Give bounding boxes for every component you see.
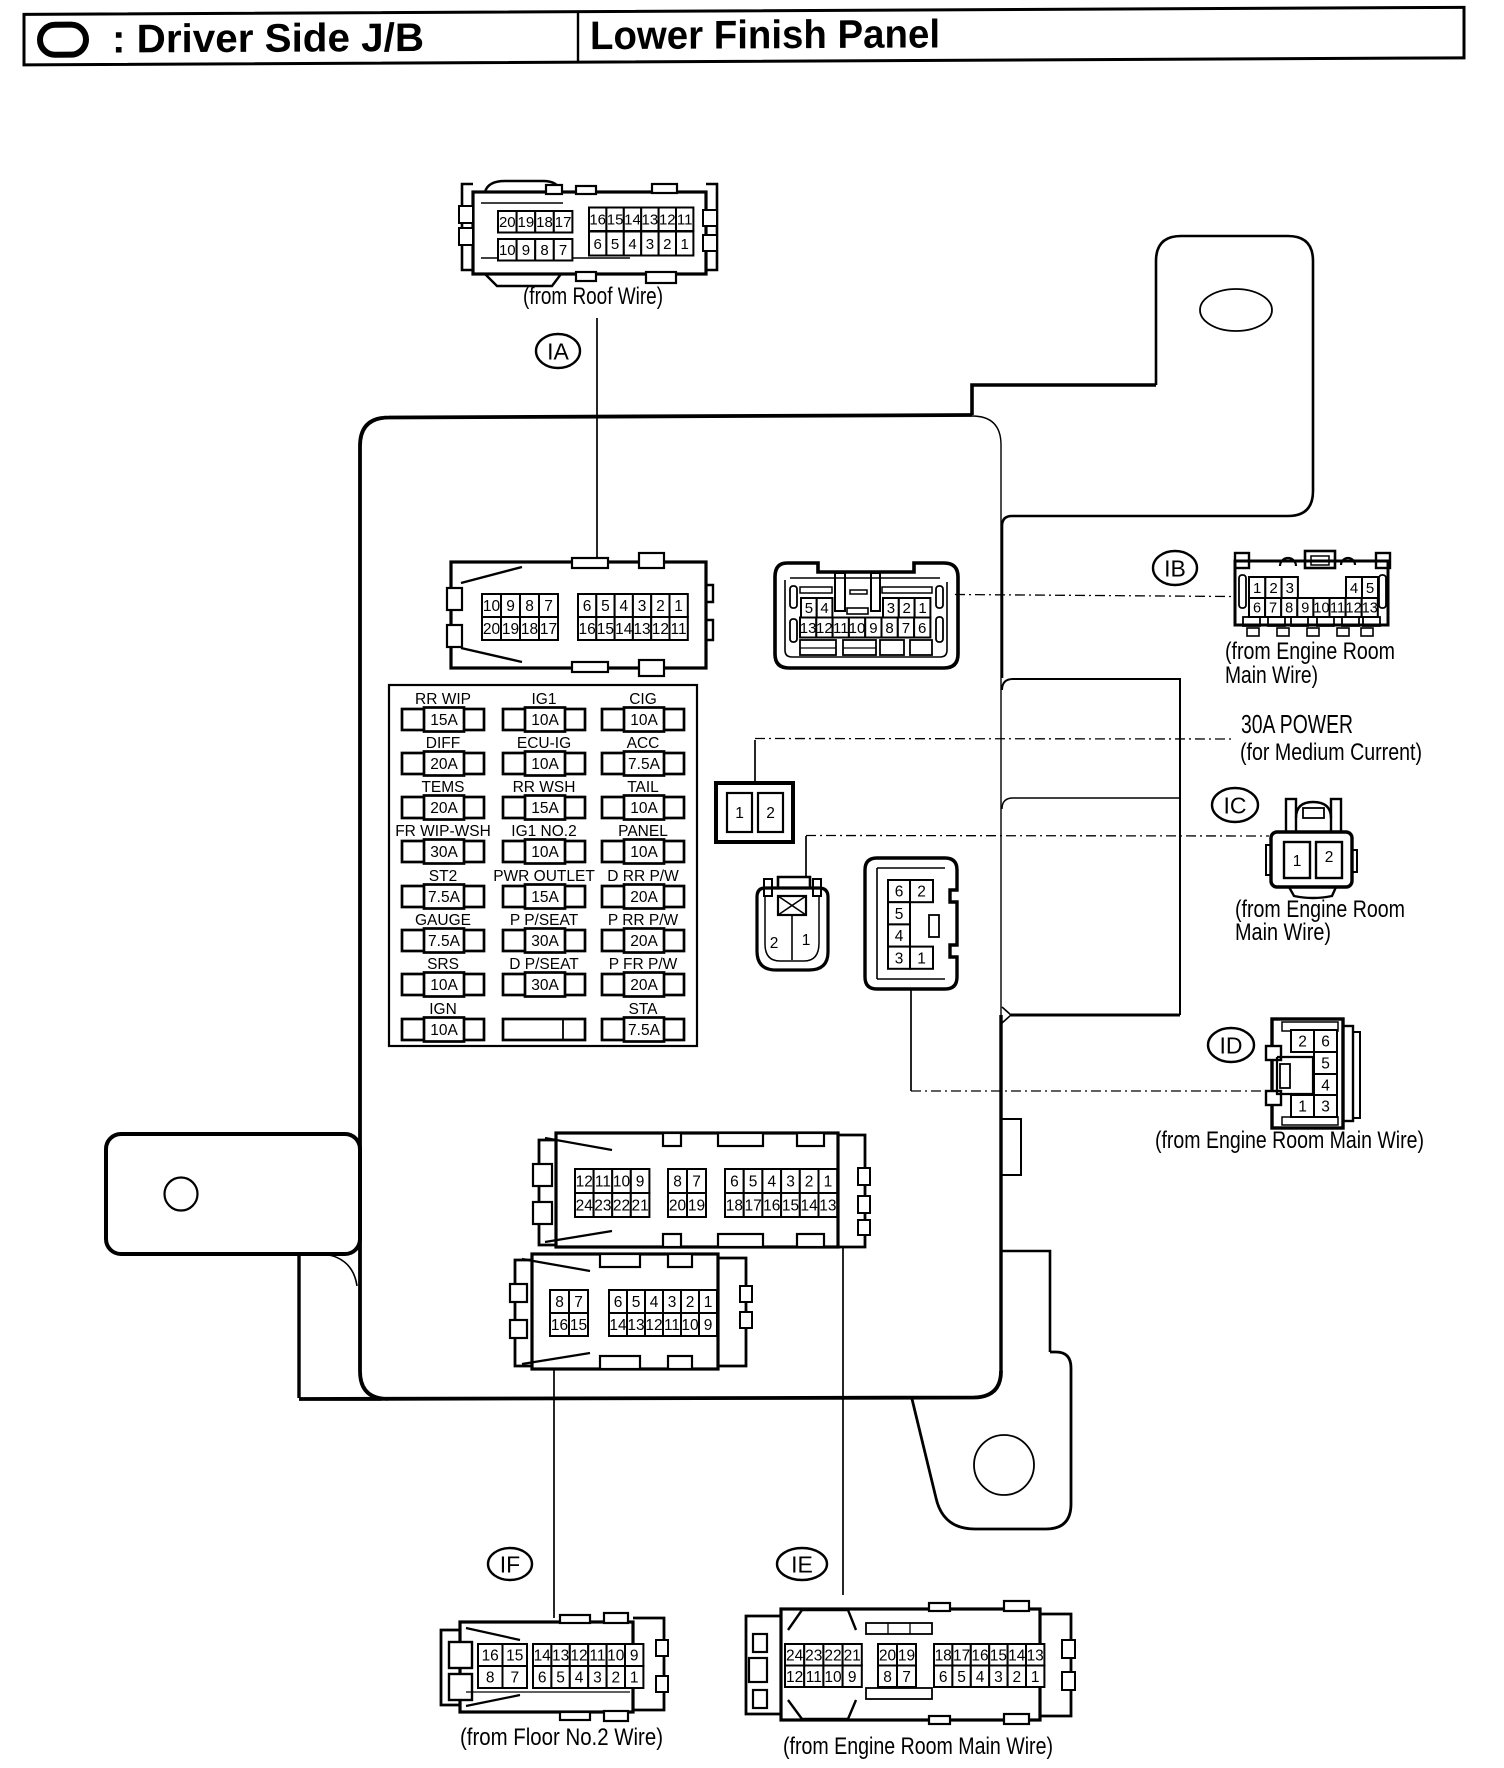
- svg-text:1: 1: [1031, 1669, 1040, 1686]
- svg-text:16: 16: [589, 212, 606, 229]
- svg-text:1: 1: [704, 1294, 713, 1311]
- svg-text:14: 14: [609, 1317, 627, 1334]
- svg-text:12: 12: [645, 1317, 662, 1334]
- svg-text:9: 9: [506, 598, 515, 615]
- svg-text:18: 18: [726, 1198, 743, 1215]
- svg-text:5: 5: [895, 906, 904, 923]
- svg-text:11: 11: [595, 1174, 611, 1191]
- svg-text:(from Engine Room Main Wire): (from Engine Room Main Wire): [1155, 1127, 1424, 1154]
- svg-text:Lower Finish Panel: Lower Finish Panel: [590, 12, 940, 58]
- svg-text:4: 4: [619, 598, 628, 615]
- svg-text:11: 11: [833, 620, 849, 637]
- svg-text:IC: IC: [1224, 792, 1247, 818]
- svg-text:5: 5: [805, 600, 813, 617]
- svg-text:1: 1: [630, 1670, 639, 1687]
- svg-text:8: 8: [525, 598, 534, 615]
- svg-text:15: 15: [607, 212, 624, 229]
- svg-text:2: 2: [805, 1174, 814, 1191]
- svg-text:3: 3: [994, 1669, 1003, 1686]
- svg-text:1: 1: [917, 950, 926, 967]
- svg-text:30A POWER: 30A POWER: [1241, 709, 1353, 739]
- svg-text:17: 17: [953, 1647, 970, 1664]
- svg-text:13: 13: [1362, 601, 1378, 617]
- svg-text:20: 20: [499, 214, 516, 231]
- svg-text:22: 22: [824, 1647, 841, 1664]
- svg-text:14: 14: [800, 1198, 818, 1215]
- svg-text:IG1 NO.2: IG1 NO.2: [511, 823, 576, 840]
- svg-text:11: 11: [589, 1648, 605, 1665]
- svg-text:20A: 20A: [630, 933, 658, 950]
- svg-text:1: 1: [681, 236, 689, 253]
- svg-text:10: 10: [824, 1669, 842, 1686]
- svg-text:14: 14: [624, 212, 641, 229]
- svg-text:1: 1: [735, 805, 744, 822]
- svg-text:D P/SEAT: D P/SEAT: [509, 956, 579, 973]
- svg-text:13: 13: [1027, 1647, 1044, 1664]
- svg-text:(from Engine Room Main Wire): (from Engine Room Main Wire): [783, 1733, 1053, 1760]
- svg-text:10A: 10A: [630, 844, 658, 861]
- svg-text:3: 3: [786, 1174, 795, 1191]
- svg-text:D RR P/W: D RR P/W: [607, 868, 679, 885]
- svg-text:20: 20: [879, 1647, 897, 1664]
- svg-text:12: 12: [1346, 601, 1362, 617]
- svg-text:5: 5: [1321, 1056, 1330, 1073]
- svg-text:IG1: IG1: [532, 691, 557, 708]
- svg-text:P FR P/W: P FR P/W: [609, 956, 678, 973]
- svg-text:13: 13: [800, 620, 817, 637]
- svg-text:14: 14: [1008, 1647, 1026, 1664]
- svg-text:6: 6: [1321, 1034, 1330, 1051]
- svg-text:10A: 10A: [531, 756, 559, 773]
- svg-text:11: 11: [664, 1317, 680, 1334]
- svg-text:13: 13: [627, 1317, 644, 1334]
- svg-text:2: 2: [917, 884, 926, 901]
- svg-text:5: 5: [632, 1294, 641, 1311]
- svg-text:(from Engine Room: (from Engine Room: [1225, 638, 1395, 665]
- svg-text:11: 11: [677, 212, 693, 229]
- svg-text:8: 8: [540, 242, 548, 259]
- svg-text:2: 2: [1012, 1669, 1021, 1686]
- svg-text:19: 19: [502, 621, 519, 638]
- svg-text:9: 9: [630, 1648, 639, 1665]
- svg-text:7: 7: [902, 1669, 911, 1686]
- svg-text:2: 2: [1298, 1034, 1307, 1051]
- svg-text:12: 12: [659, 212, 676, 229]
- svg-text:8: 8: [486, 1670, 495, 1687]
- svg-text:16: 16: [551, 1317, 568, 1334]
- svg-text:23: 23: [805, 1647, 822, 1664]
- svg-text:6: 6: [538, 1670, 547, 1687]
- svg-text:4: 4: [820, 600, 828, 617]
- svg-text:(from Floor No.2 Wire): (from Floor No.2 Wire): [460, 1724, 663, 1751]
- svg-text:9: 9: [636, 1174, 645, 1191]
- svg-text:9: 9: [704, 1317, 713, 1334]
- svg-text:15: 15: [597, 621, 614, 638]
- svg-text:P RR P/W: P RR P/W: [608, 912, 679, 929]
- svg-text:15: 15: [782, 1198, 799, 1215]
- svg-text:11: 11: [1330, 601, 1345, 617]
- svg-text:7: 7: [692, 1174, 701, 1191]
- svg-text:10: 10: [607, 1648, 625, 1665]
- svg-text:15A: 15A: [531, 889, 559, 906]
- svg-text:SRS: SRS: [427, 956, 459, 973]
- svg-text:DIFF: DIFF: [426, 735, 460, 752]
- svg-text:15: 15: [506, 1648, 523, 1665]
- svg-text:4: 4: [1321, 1078, 1330, 1095]
- svg-text:20: 20: [483, 621, 501, 638]
- svg-text:20A: 20A: [630, 977, 658, 994]
- svg-text:3: 3: [646, 236, 654, 253]
- svg-text:1: 1: [824, 1174, 833, 1191]
- svg-text:12: 12: [576, 1174, 593, 1191]
- svg-text:IF: IF: [500, 1551, 520, 1577]
- svg-text:18: 18: [935, 1647, 952, 1664]
- svg-text:9: 9: [848, 1669, 857, 1686]
- svg-text:8: 8: [673, 1174, 682, 1191]
- svg-text:(for Medium Current): (for Medium Current): [1240, 739, 1422, 766]
- svg-text:12: 12: [786, 1669, 803, 1686]
- svg-text:15A: 15A: [531, 800, 559, 817]
- svg-text:3: 3: [1321, 1099, 1330, 1116]
- svg-text:24: 24: [576, 1198, 594, 1215]
- svg-text:21: 21: [844, 1647, 861, 1664]
- svg-text:30A: 30A: [430, 844, 458, 861]
- svg-text:18: 18: [521, 621, 538, 638]
- svg-text:20: 20: [669, 1198, 687, 1215]
- svg-text:2: 2: [770, 935, 779, 952]
- svg-text:10: 10: [499, 242, 516, 259]
- svg-text:CIG: CIG: [629, 691, 657, 708]
- svg-text:10: 10: [613, 1174, 631, 1191]
- svg-text:7: 7: [510, 1670, 519, 1687]
- svg-text:20A: 20A: [630, 889, 658, 906]
- svg-text:12: 12: [570, 1648, 587, 1665]
- svg-text:12: 12: [816, 620, 833, 637]
- svg-text:6: 6: [895, 884, 904, 901]
- svg-text:10A: 10A: [531, 844, 559, 861]
- svg-text:ST2: ST2: [429, 868, 457, 885]
- svg-text:P P/SEAT: P P/SEAT: [510, 912, 579, 929]
- svg-text:3: 3: [638, 598, 647, 615]
- svg-text:GAUGE: GAUGE: [415, 912, 471, 929]
- svg-text:16: 16: [578, 621, 595, 638]
- svg-text:7.5A: 7.5A: [628, 1022, 661, 1039]
- svg-text:10A: 10A: [630, 712, 658, 729]
- svg-text:4: 4: [895, 928, 904, 945]
- svg-text:5: 5: [611, 236, 619, 253]
- svg-text:3: 3: [1286, 580, 1294, 597]
- svg-text:(from Roof Wire): (from Roof Wire): [523, 283, 663, 310]
- svg-text:1: 1: [674, 598, 683, 615]
- svg-text:1: 1: [918, 600, 926, 617]
- svg-text:FR WIP-WSH: FR WIP-WSH: [395, 823, 491, 840]
- svg-text:2: 2: [1325, 849, 1334, 866]
- svg-text:1: 1: [1293, 853, 1302, 870]
- svg-text:15A: 15A: [430, 712, 458, 729]
- svg-text:13: 13: [633, 621, 650, 638]
- svg-text:STA: STA: [629, 1001, 659, 1018]
- svg-text:7: 7: [1269, 601, 1277, 617]
- svg-text:7.5A: 7.5A: [628, 756, 661, 773]
- svg-text:Main Wire): Main Wire): [1225, 662, 1318, 689]
- svg-text:: Driver Side J/B: : Driver Side J/B: [112, 16, 424, 62]
- svg-text:18: 18: [536, 214, 553, 231]
- svg-text:8: 8: [885, 620, 893, 637]
- svg-text:IA: IA: [547, 338, 569, 364]
- svg-text:ACC: ACC: [627, 735, 660, 752]
- svg-text:22: 22: [613, 1198, 630, 1215]
- svg-text:10: 10: [849, 620, 866, 637]
- svg-text:7: 7: [544, 598, 553, 615]
- svg-text:10: 10: [483, 598, 501, 615]
- svg-text:9: 9: [522, 242, 530, 259]
- svg-text:ECU-IG: ECU-IG: [517, 735, 571, 752]
- svg-text:10: 10: [1313, 601, 1329, 617]
- svg-text:RR WSH: RR WSH: [513, 779, 576, 796]
- svg-text:5: 5: [1366, 580, 1374, 597]
- svg-text:13: 13: [552, 1648, 569, 1665]
- svg-text:ID: ID: [1220, 1032, 1243, 1058]
- svg-text:4: 4: [1350, 580, 1358, 597]
- svg-text:6: 6: [583, 598, 592, 615]
- svg-text:30A: 30A: [531, 977, 559, 994]
- svg-text:24: 24: [786, 1647, 804, 1664]
- svg-text:8: 8: [883, 1669, 892, 1686]
- svg-text:2: 2: [611, 1670, 620, 1687]
- svg-text:7.5A: 7.5A: [428, 933, 461, 950]
- svg-text:PWR OUTLET: PWR OUTLET: [493, 868, 595, 885]
- svg-text:20A: 20A: [430, 800, 458, 817]
- svg-text:9: 9: [869, 620, 877, 637]
- svg-text:TAIL: TAIL: [627, 779, 659, 796]
- svg-text:7: 7: [902, 620, 910, 637]
- svg-text:4: 4: [767, 1174, 776, 1191]
- svg-text:5: 5: [556, 1670, 565, 1687]
- svg-text:14: 14: [615, 621, 633, 638]
- svg-text:15: 15: [570, 1317, 587, 1334]
- svg-text:9: 9: [1301, 601, 1309, 617]
- svg-text:11: 11: [806, 1669, 822, 1686]
- svg-text:8: 8: [1285, 601, 1293, 617]
- svg-text:6: 6: [730, 1174, 739, 1191]
- svg-text:17: 17: [555, 214, 572, 231]
- svg-text:6: 6: [939, 1669, 948, 1686]
- svg-text:IB: IB: [1164, 555, 1186, 581]
- svg-text:17: 17: [540, 621, 557, 638]
- svg-text:TEMS: TEMS: [421, 779, 464, 796]
- svg-text:2: 2: [663, 236, 671, 253]
- svg-text:4: 4: [976, 1669, 985, 1686]
- svg-text:1: 1: [1253, 580, 1261, 597]
- svg-text:20A: 20A: [430, 756, 458, 773]
- svg-text:5: 5: [749, 1174, 758, 1191]
- svg-text:RR WIP: RR WIP: [415, 691, 471, 708]
- svg-text:IGN: IGN: [429, 1001, 457, 1018]
- svg-text:5: 5: [601, 598, 610, 615]
- svg-text:11: 11: [671, 621, 687, 638]
- svg-text:16: 16: [482, 1648, 499, 1665]
- svg-text:19: 19: [898, 1647, 915, 1664]
- svg-text:1: 1: [802, 932, 811, 949]
- svg-text:6: 6: [614, 1294, 623, 1311]
- svg-text:Main Wire): Main Wire): [1235, 919, 1331, 946]
- svg-text:16: 16: [971, 1647, 988, 1664]
- svg-text:14: 14: [534, 1648, 552, 1665]
- svg-text:7.5A: 7.5A: [428, 889, 461, 906]
- svg-text:15: 15: [990, 1647, 1007, 1664]
- svg-text:5: 5: [957, 1669, 966, 1686]
- svg-text:10: 10: [681, 1317, 699, 1334]
- svg-text:6: 6: [594, 236, 602, 253]
- svg-text:PANEL: PANEL: [618, 823, 668, 840]
- svg-text:19: 19: [518, 214, 535, 231]
- svg-text:10A: 10A: [430, 977, 458, 994]
- svg-text:2: 2: [903, 600, 911, 617]
- svg-text:7: 7: [574, 1294, 583, 1311]
- svg-text:19: 19: [688, 1198, 705, 1215]
- svg-text:8: 8: [555, 1294, 564, 1311]
- svg-text:10A: 10A: [630, 800, 658, 817]
- svg-text:21: 21: [631, 1198, 648, 1215]
- svg-text:2: 2: [766, 805, 775, 822]
- svg-text:13: 13: [819, 1198, 836, 1215]
- svg-text:10A: 10A: [531, 712, 559, 729]
- svg-text:10A: 10A: [430, 1022, 458, 1039]
- svg-text:6: 6: [1253, 601, 1261, 617]
- svg-text:30A: 30A: [531, 933, 559, 950]
- svg-text:4: 4: [628, 236, 636, 253]
- svg-text:17: 17: [744, 1198, 761, 1215]
- svg-text:1: 1: [1298, 1099, 1307, 1116]
- svg-text:4: 4: [650, 1294, 659, 1311]
- svg-text:23: 23: [594, 1198, 611, 1215]
- svg-text:6: 6: [918, 620, 926, 637]
- svg-text:3: 3: [668, 1294, 677, 1311]
- svg-text:2: 2: [686, 1294, 695, 1311]
- svg-text:3: 3: [895, 950, 904, 967]
- svg-text:13: 13: [642, 212, 659, 229]
- svg-text:12: 12: [652, 621, 669, 638]
- svg-text:2: 2: [1269, 580, 1277, 597]
- svg-text:IE: IE: [791, 1551, 813, 1577]
- svg-text:3: 3: [593, 1670, 602, 1687]
- svg-text:16: 16: [763, 1198, 780, 1215]
- svg-text:3: 3: [887, 600, 895, 617]
- svg-text:2: 2: [656, 598, 665, 615]
- svg-text:4: 4: [575, 1670, 584, 1687]
- svg-text:7: 7: [559, 242, 567, 259]
